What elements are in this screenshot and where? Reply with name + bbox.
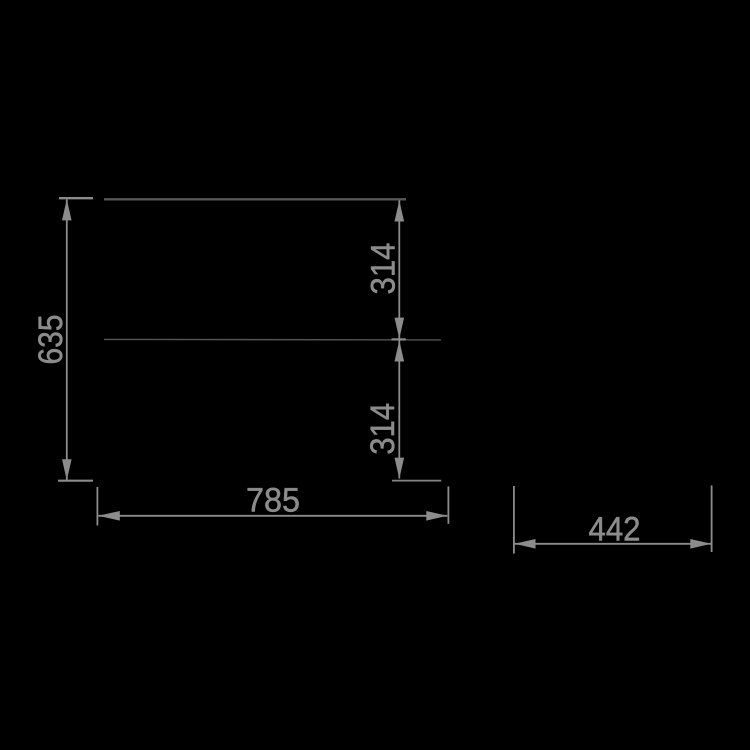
svg-text:314: 314 xyxy=(364,403,402,455)
svg-text:442: 442 xyxy=(589,511,641,549)
svg-text:785: 785 xyxy=(246,482,300,520)
svg-text:635: 635 xyxy=(32,315,70,365)
svg-text:314: 314 xyxy=(365,243,403,295)
